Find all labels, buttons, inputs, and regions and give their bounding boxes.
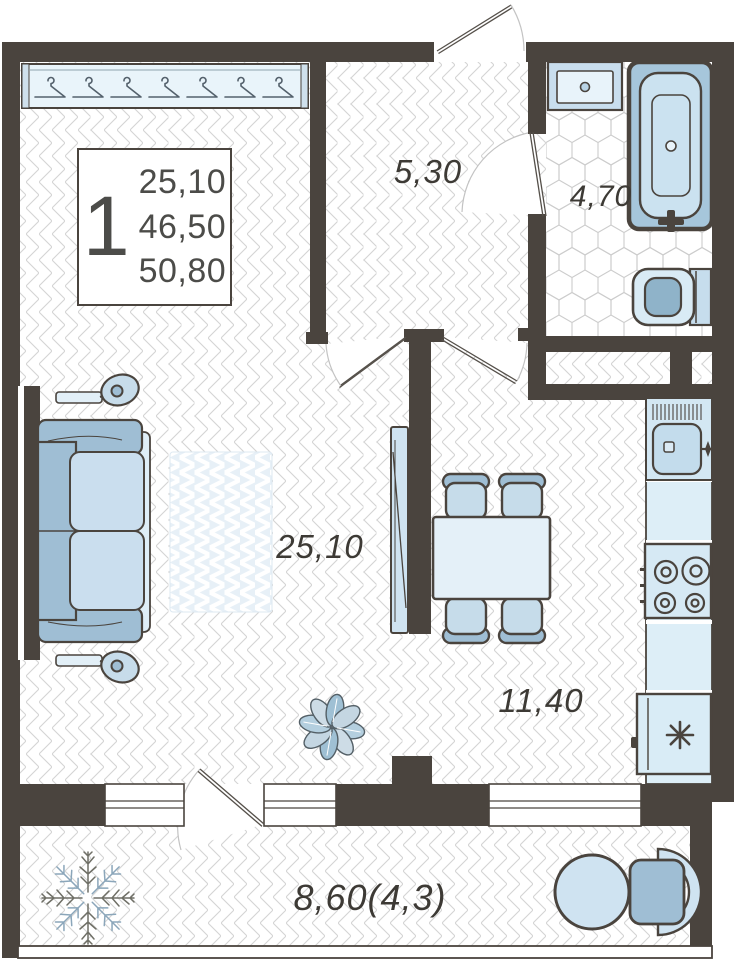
wall-pillar-cap (404, 329, 444, 342)
wall-top-right (526, 42, 712, 62)
fridge (631, 694, 711, 774)
floor-plan: 1 25,10 46,50 50,80 5,30 4,70 25,10 11,4… (0, 0, 734, 970)
balcony-table (555, 855, 629, 929)
wall-pillar (409, 341, 431, 634)
kitchen-sink (646, 398, 712, 480)
label-living-room-area: 25,10 (276, 528, 364, 566)
unit-room-area: 25,10 (139, 160, 227, 205)
unit-living-area: 46,50 (139, 205, 227, 250)
snowflake-icon (667, 722, 693, 748)
wardrobe (22, 64, 308, 108)
door-entrance (437, 5, 524, 54)
wall-bath-bottom (546, 336, 712, 352)
wall-balcony-2 (336, 784, 489, 826)
wall-bath-left-lower (528, 214, 546, 400)
chair (443, 598, 489, 643)
wall-door-frame-nub (518, 328, 530, 341)
label-bathroom-area: 4,70 (570, 180, 632, 214)
wall-hallway (310, 62, 326, 344)
wall-balcony-1 (20, 784, 105, 826)
balcony-railing (18, 946, 712, 958)
label-balcony-area: 8,60(4,3) (293, 877, 446, 919)
chair (499, 474, 545, 519)
window-balcony-mid (264, 784, 336, 826)
bathtub (629, 62, 712, 232)
wall-hallway-foot (306, 332, 328, 344)
chair (499, 598, 545, 643)
balcony-chair (630, 860, 684, 924)
dining-table (433, 517, 550, 599)
wall-balcony-stub (392, 756, 432, 786)
toilet (633, 269, 711, 325)
window-kitchen (489, 784, 641, 826)
chair (443, 474, 489, 519)
unit-info-card: 1 25,10 46,50 50,80 (77, 148, 232, 306)
window-balcony-left (105, 784, 184, 826)
wall-slit (18, 386, 24, 660)
stove (640, 544, 711, 618)
drain-icon (666, 141, 676, 151)
tv (391, 427, 412, 633)
wall-bath-left-upper (528, 62, 546, 134)
label-hallway-area: 5,30 (394, 153, 462, 191)
floor-plan-drawing (0, 0, 734, 970)
unit-total-area: 50,80 (139, 249, 227, 294)
wall-top-left (20, 42, 434, 62)
rug (170, 452, 272, 612)
wall-left-outer (2, 42, 20, 958)
sofa (38, 420, 150, 642)
label-kitchen-area: 11,40 (498, 682, 583, 720)
unit-rooms-count: 1 (83, 191, 130, 262)
wall-right-outer (712, 42, 734, 802)
wall-duct-stub (670, 352, 692, 386)
unit-areas: 25,10 46,50 50,80 (139, 160, 227, 295)
